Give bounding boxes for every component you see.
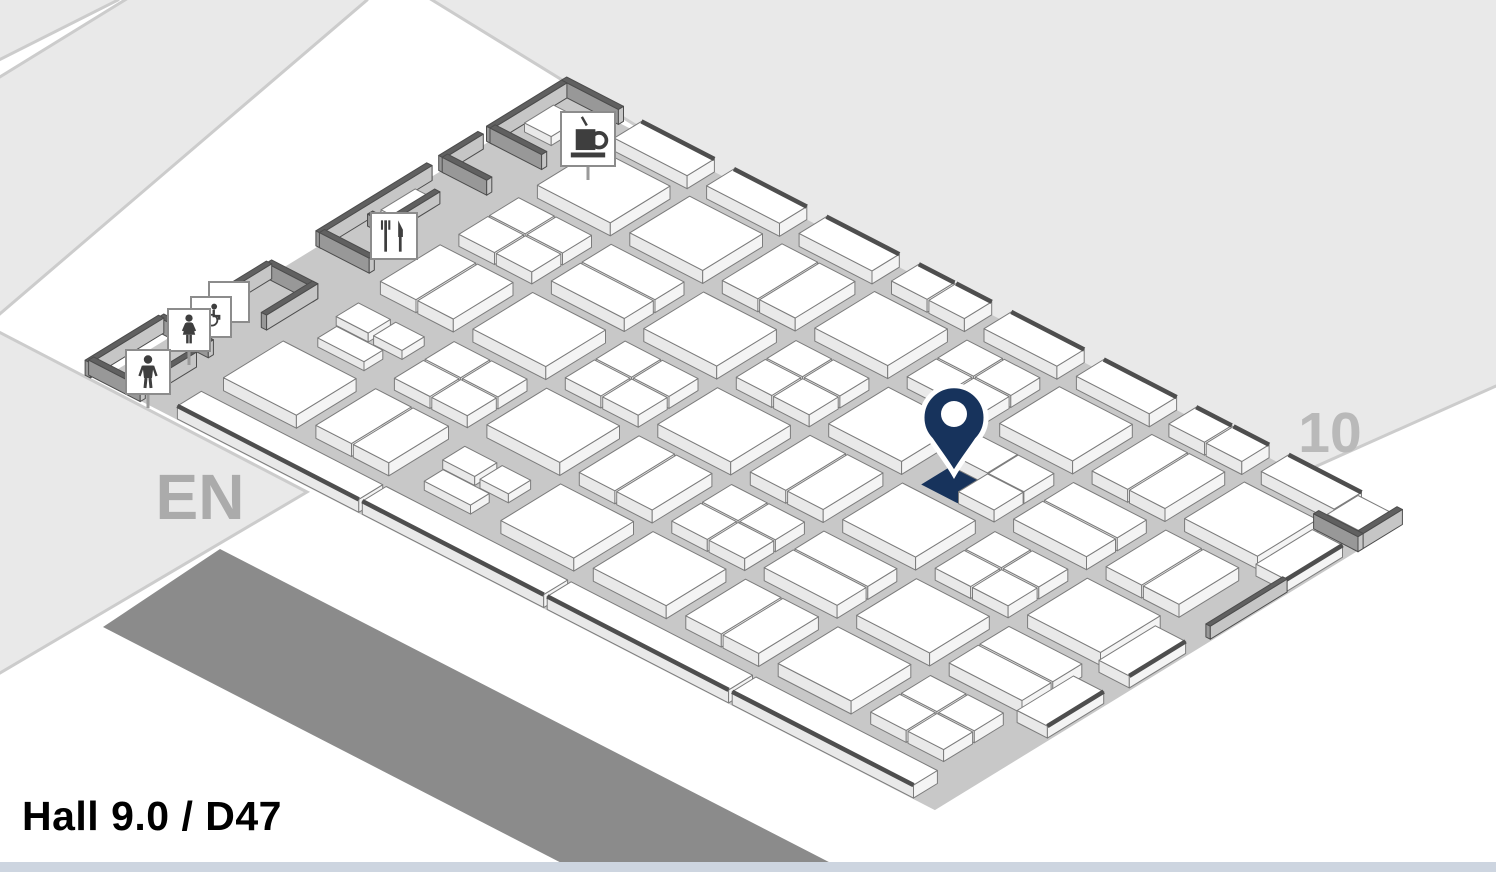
hall-booth-label: Hall 9.0 / D47	[22, 793, 282, 840]
hall-floor-plan-map: EN10	[0, 0, 1496, 872]
restaurant-icon	[371, 213, 417, 259]
entrance-label: EN	[156, 461, 245, 533]
bottom-bar	[0, 862, 1496, 872]
floor-plan-page: EN10 Hall 9.0 / D47	[0, 0, 1496, 872]
adjacent-hall-label: 10	[1298, 401, 1361, 465]
